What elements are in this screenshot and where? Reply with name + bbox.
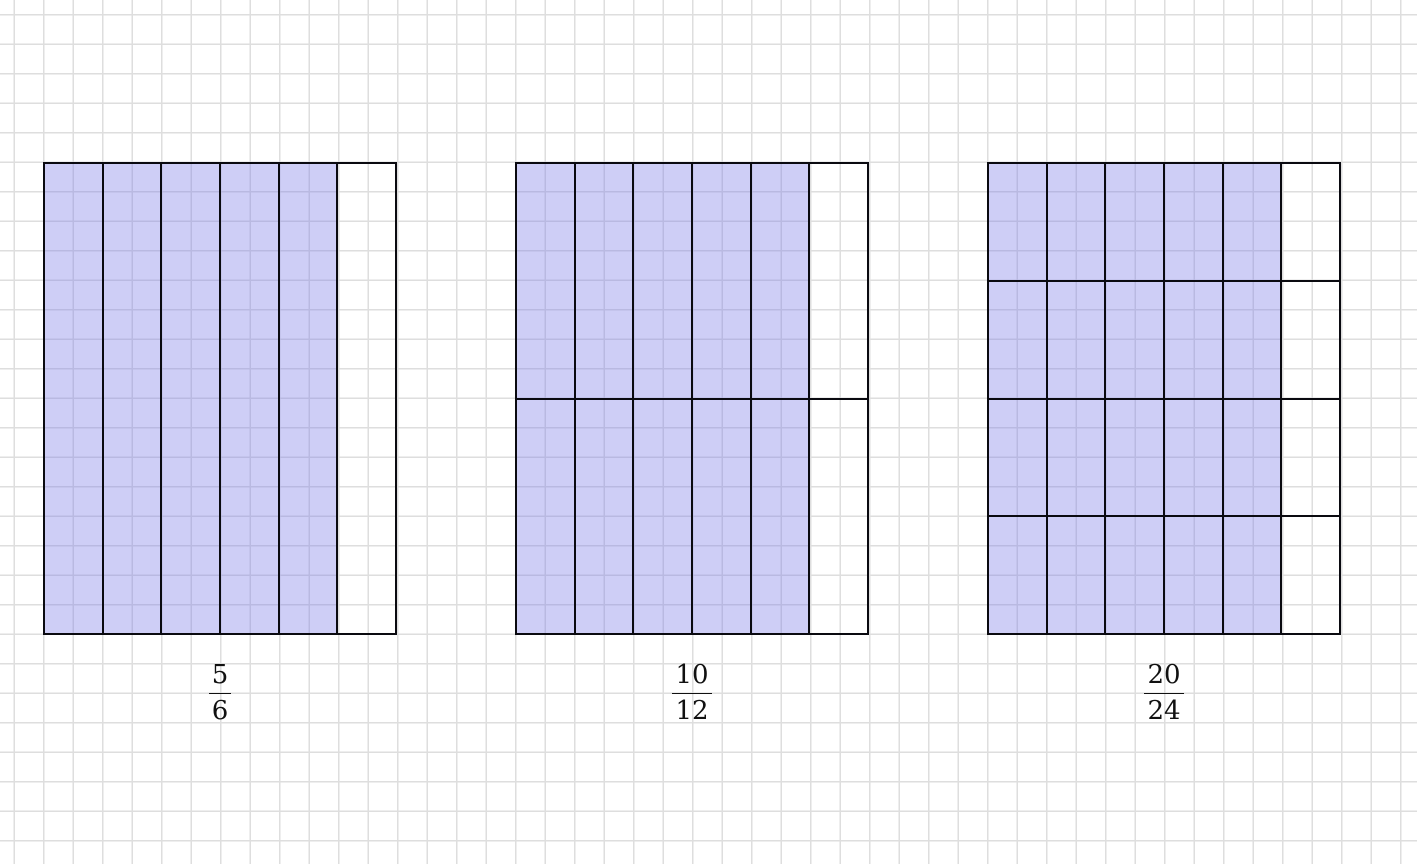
- shaded-cell: [752, 400, 811, 636]
- shaded-cell: [280, 164, 339, 635]
- shaded-cell: [1048, 517, 1107, 635]
- shaded-cell: [1224, 164, 1283, 282]
- fraction-denominator: 6: [209, 693, 232, 727]
- fraction-denominator: 24: [1144, 693, 1183, 727]
- fraction-figure-10-12: 10 12: [515, 162, 869, 727]
- shaded-cell: [104, 164, 163, 635]
- shaded-cell: [162, 164, 221, 635]
- shaded-cell: [1106, 164, 1165, 282]
- unshaded-cell: [338, 164, 397, 635]
- shaded-cell: [1048, 400, 1107, 518]
- unshaded-cell: [1282, 517, 1341, 635]
- shaded-cell: [1165, 517, 1224, 635]
- shaded-cell: [1224, 282, 1283, 400]
- shaded-cell: [517, 164, 576, 400]
- fraction-figure-5-6: 5 6: [43, 162, 397, 727]
- shaded-cell: [634, 164, 693, 400]
- shaded-cell: [1106, 282, 1165, 400]
- shaded-cell: [989, 164, 1048, 282]
- unshaded-cell: [810, 164, 869, 400]
- fraction-grid-20-24: [987, 162, 1341, 635]
- shaded-cell: [752, 164, 811, 400]
- shaded-cell: [1165, 282, 1224, 400]
- shaded-cell: [1224, 517, 1283, 635]
- shaded-cell: [576, 400, 635, 636]
- shaded-cell: [221, 164, 280, 635]
- shaded-cell: [517, 400, 576, 636]
- unshaded-cell: [1282, 282, 1341, 400]
- graph-paper-canvas: 5 6 10 12 20 24: [0, 0, 1417, 864]
- fraction-label-5-6: 5 6: [43, 660, 397, 727]
- fraction-denominator: 12: [672, 693, 711, 727]
- shaded-cell: [45, 164, 104, 635]
- shaded-cell: [989, 517, 1048, 635]
- fraction: 5 6: [209, 660, 232, 727]
- fraction-label-20-24: 20 24: [987, 660, 1341, 727]
- fraction: 10 12: [672, 660, 711, 727]
- shaded-cell: [1165, 400, 1224, 518]
- unshaded-cell: [1282, 164, 1341, 282]
- fraction-numerator: 5: [209, 660, 232, 691]
- shaded-cell: [1106, 400, 1165, 518]
- shaded-cell: [693, 164, 752, 400]
- fraction-label-10-12: 10 12: [515, 660, 869, 727]
- shaded-cell: [1048, 164, 1107, 282]
- shaded-cell: [1048, 282, 1107, 400]
- fraction-grid-5-6: [43, 162, 397, 635]
- shaded-cell: [1165, 164, 1224, 282]
- shaded-cell: [1224, 400, 1283, 518]
- shaded-cell: [989, 282, 1048, 400]
- unshaded-cell: [1282, 400, 1341, 518]
- fraction-figure-20-24: 20 24: [987, 162, 1341, 727]
- shaded-cell: [1106, 517, 1165, 635]
- fraction: 20 24: [1144, 660, 1183, 727]
- fraction-numerator: 10: [672, 660, 711, 691]
- fraction-numerator: 20: [1144, 660, 1183, 691]
- shaded-cell: [576, 164, 635, 400]
- unshaded-cell: [810, 400, 869, 636]
- shaded-cell: [989, 400, 1048, 518]
- shaded-cell: [634, 400, 693, 636]
- shaded-cell: [693, 400, 752, 636]
- fraction-grid-10-12: [515, 162, 869, 635]
